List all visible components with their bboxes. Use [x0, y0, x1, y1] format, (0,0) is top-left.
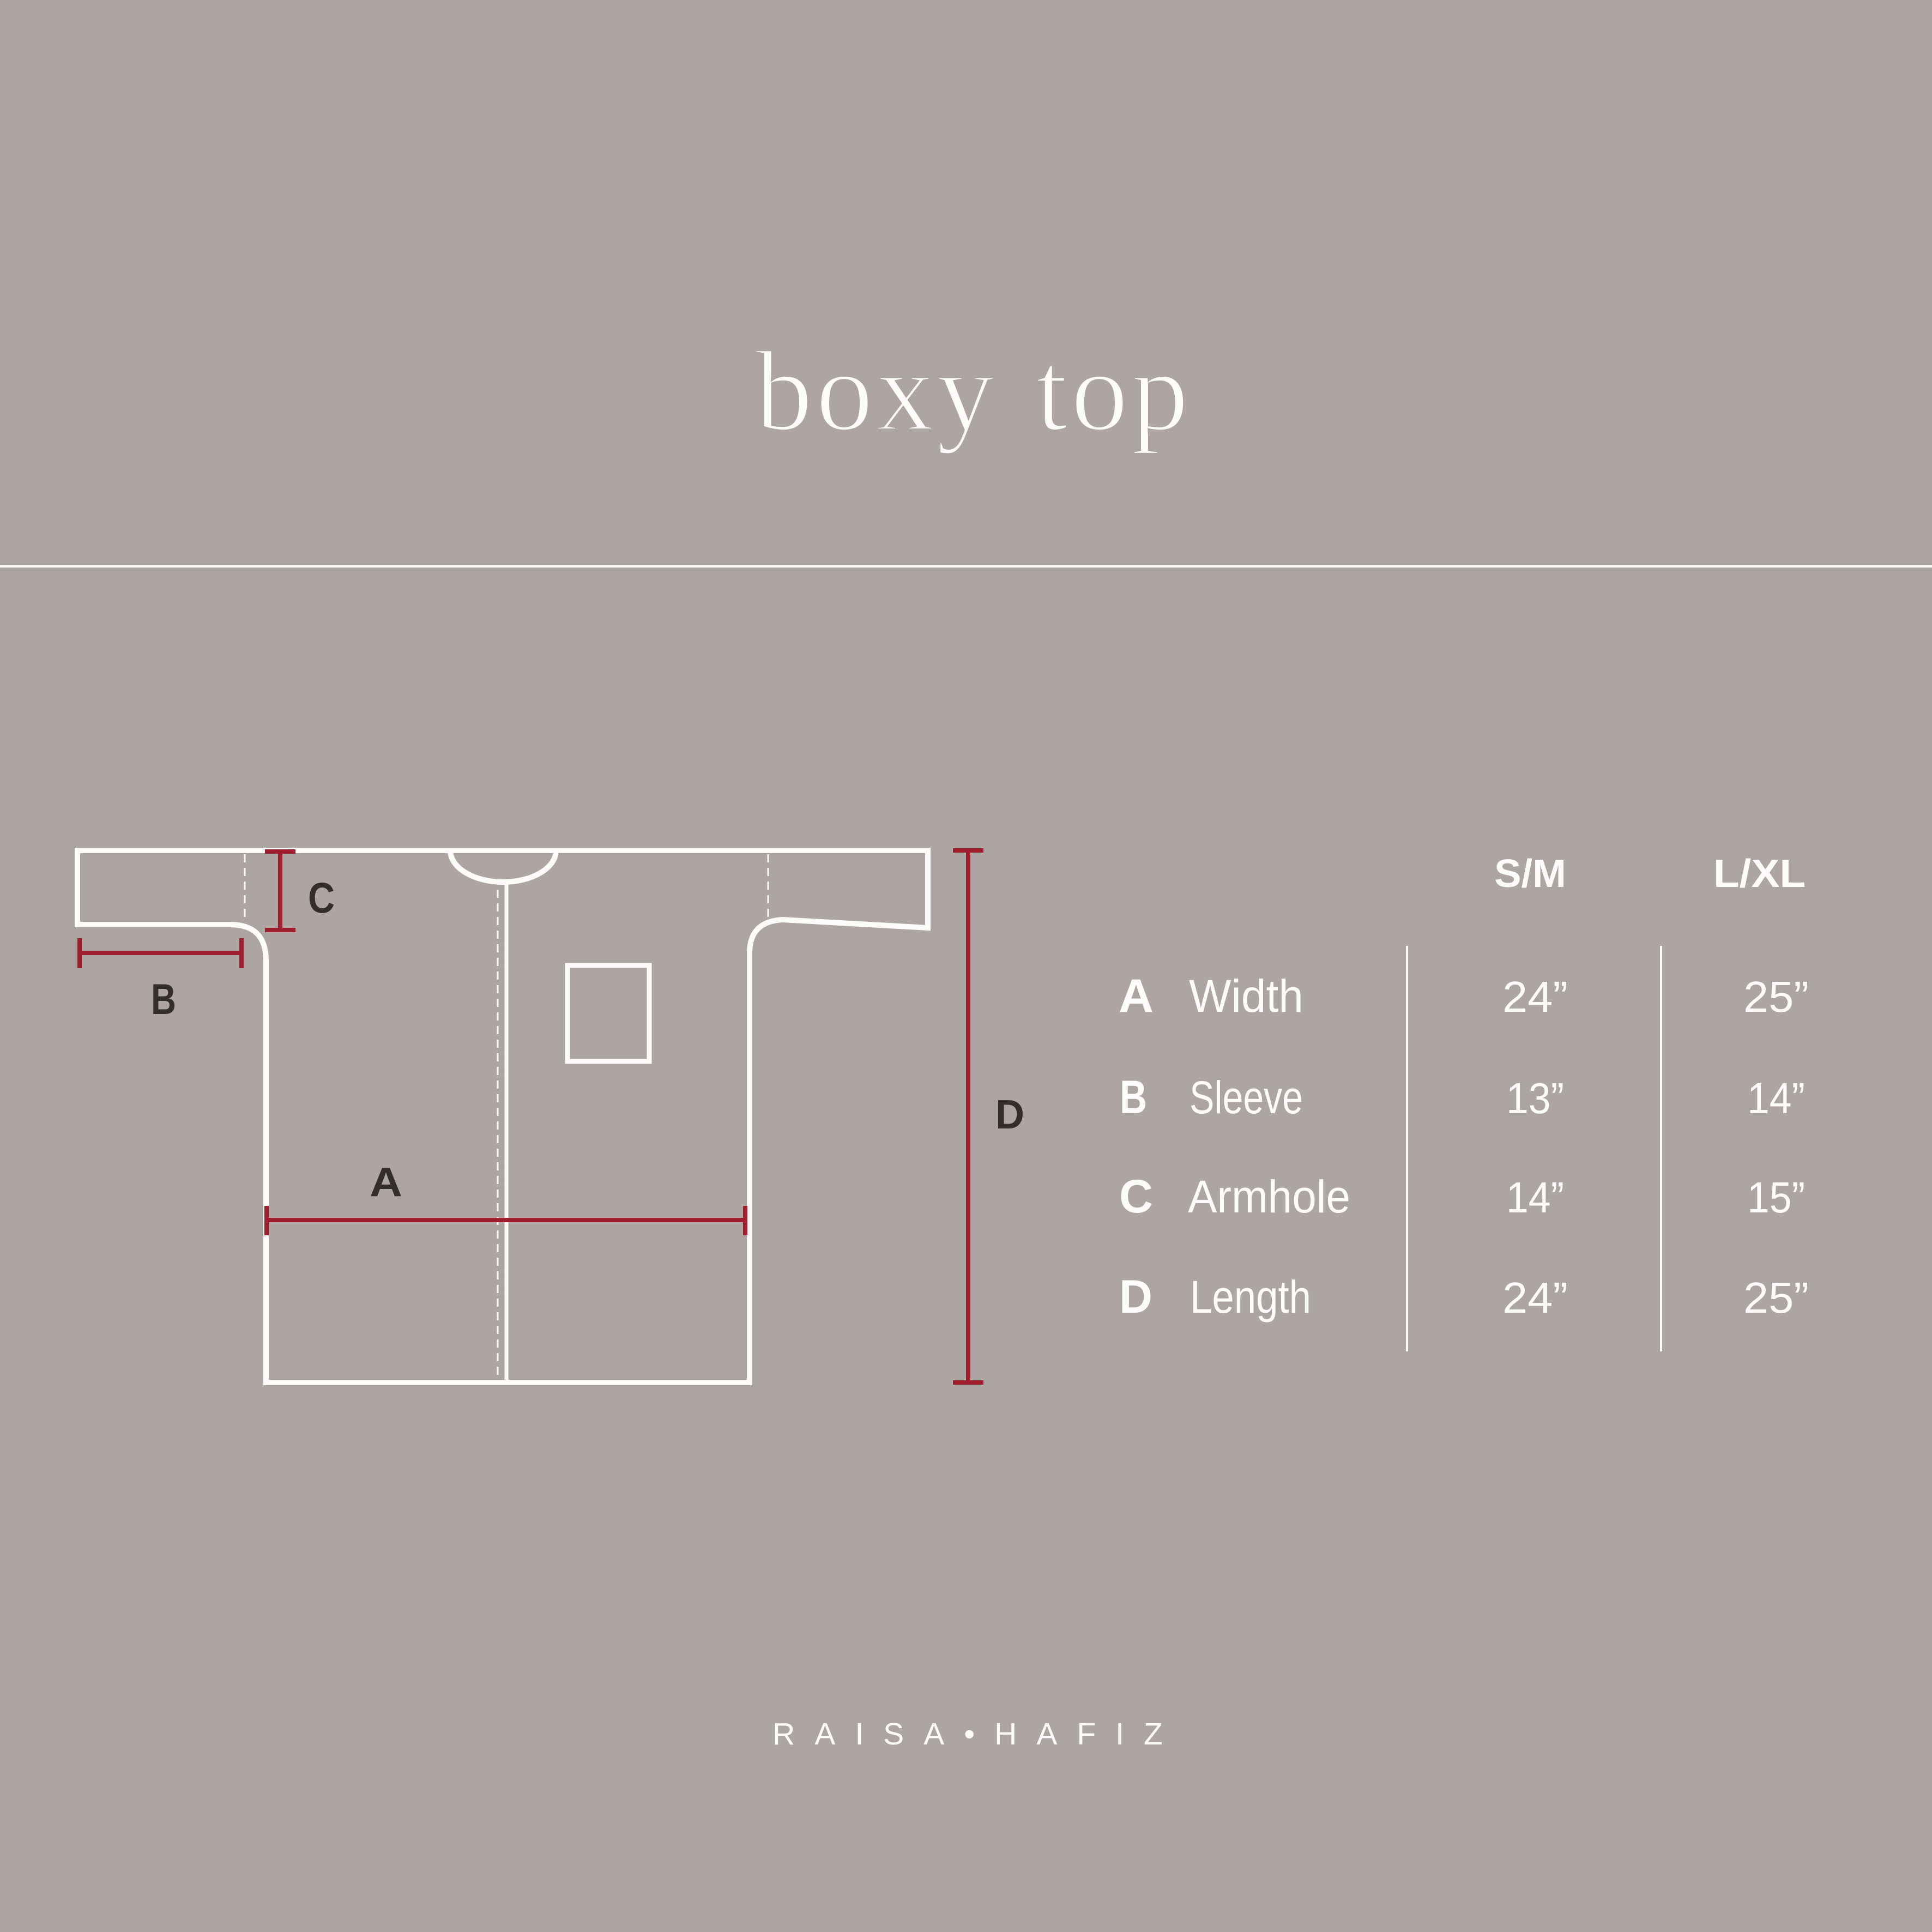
svg-text:Armhole: Armhole [1188, 1171, 1350, 1222]
svg-text:24”: 24” [1502, 973, 1568, 1021]
svg-text:14”: 14” [1506, 1173, 1564, 1222]
svg-text:L/XL: L/XL [1713, 852, 1806, 896]
svg-text:B: B [151, 975, 176, 1023]
svg-text:S/M: S/M [1494, 852, 1566, 896]
svg-text:boxy top: boxy top [756, 328, 1192, 455]
svg-text:15”: 15” [1747, 1173, 1805, 1222]
svg-text:A: A [370, 1159, 402, 1205]
svg-text:24”: 24” [1502, 1273, 1568, 1322]
svg-text:Length: Length [1190, 1271, 1311, 1323]
svg-text:D: D [1119, 1271, 1152, 1323]
svg-text:25”: 25” [1743, 973, 1809, 1021]
svg-text:Sleeve: Sleeve [1190, 1072, 1303, 1123]
svg-text:Width: Width [1189, 970, 1303, 1022]
svg-text:C: C [1119, 1170, 1153, 1223]
svg-text:C: C [308, 873, 335, 922]
svg-text:RAISA•HAFIZ: RAISA•HAFIZ [772, 1717, 1182, 1752]
svg-text:25”: 25” [1743, 1273, 1809, 1322]
svg-text:A: A [1119, 970, 1154, 1022]
svg-text:B: B [1120, 1071, 1147, 1124]
svg-text:13”: 13” [1506, 1074, 1564, 1122]
svg-text:14”: 14” [1747, 1074, 1805, 1122]
svg-text:D: D [995, 1091, 1024, 1137]
